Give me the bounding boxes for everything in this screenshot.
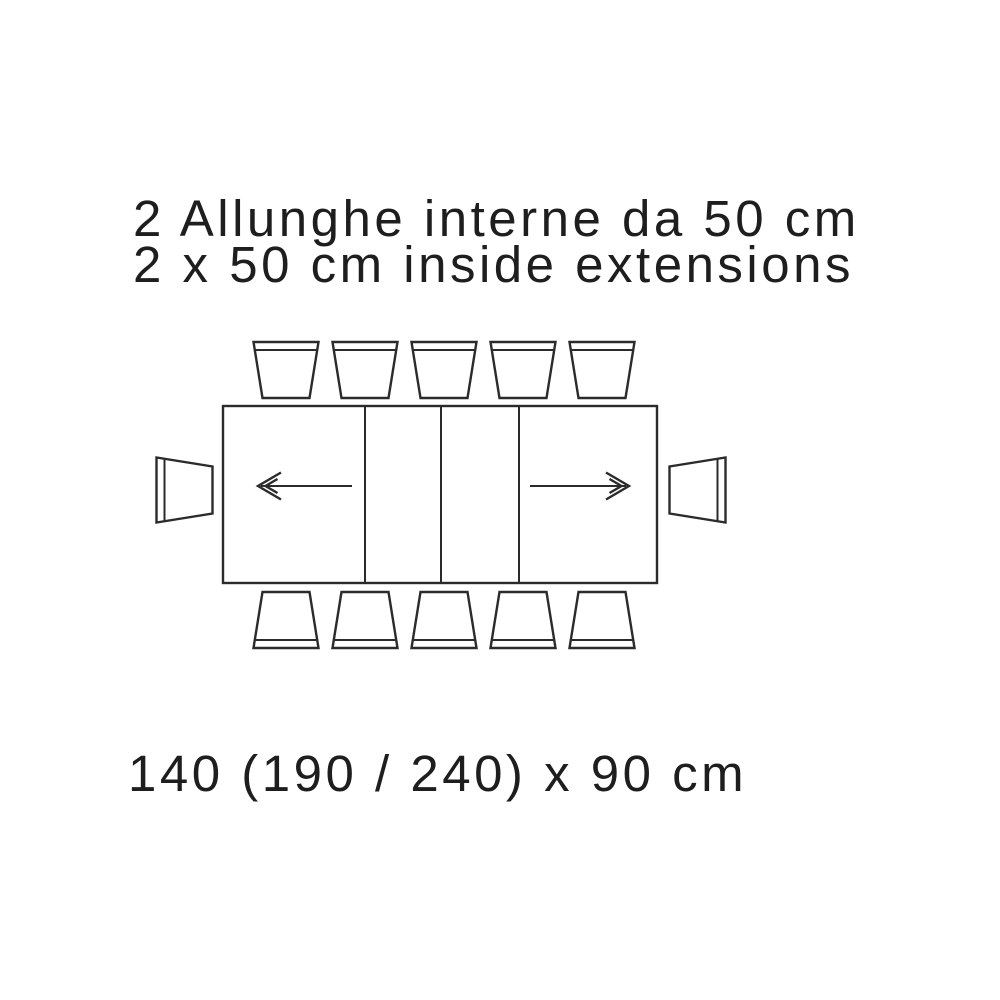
chair-top-2-icon — [333, 342, 398, 398]
chair-top-4-icon — [491, 342, 556, 398]
table-plan-drawing — [0, 0, 1000, 1000]
product-dimension-diagram: 2 Allunghe interne da 50 cm 2 x 50 cm in… — [0, 0, 1000, 1000]
chair-left-icon — [157, 458, 213, 523]
chair-bottom-1-icon — [254, 592, 319, 648]
right-extension-arrow — [530, 473, 629, 500]
left-extension-arrow — [258, 473, 352, 500]
chair-top-1-icon — [254, 342, 319, 398]
chair-top-3-icon — [412, 342, 477, 398]
chair-right-icon — [670, 458, 726, 523]
chair-bottom-4-icon — [491, 592, 556, 648]
table-top — [223, 406, 657, 583]
chair-bottom-3-icon — [412, 592, 477, 648]
chair-bottom-2-icon — [333, 592, 398, 648]
chair-top-5-icon — [570, 342, 635, 398]
dimensions-text: 140 (190 / 240) x 90 cm — [128, 751, 747, 797]
chair-bottom-5-icon — [570, 592, 635, 648]
dimensions-caption: 140 (190 / 240) x 90 cm — [128, 751, 747, 797]
